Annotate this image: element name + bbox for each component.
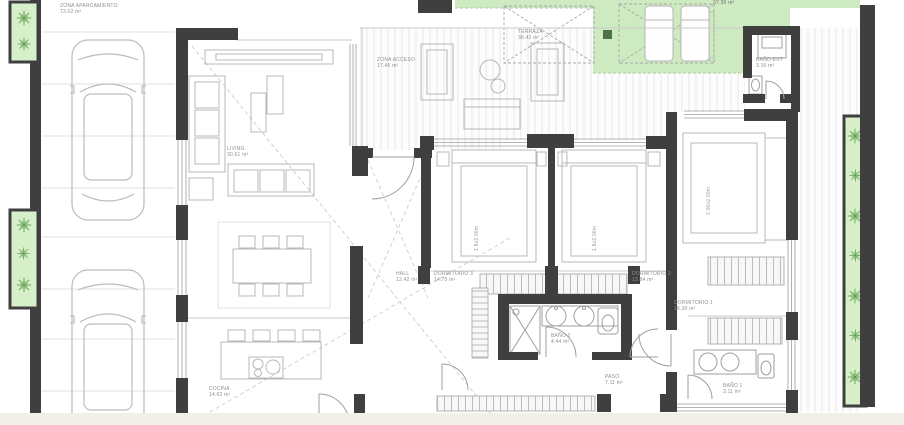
bottom-strip [0,413,904,425]
room-label-dormitorio3: DORMITORIO 3 14.75 m² [434,271,473,283]
floor-plan: ZONA APARCAMIENTO 73.02 m² LIVING 30.61 … [0,0,904,425]
stairs-return [472,288,488,358]
room-label-bano2: BAÑO 2 4.44 m² [551,333,571,345]
room-label-zona-aparcamiento: ZONA APARCAMIENTO 73.02 m² [60,3,118,15]
wardrobe-hall [437,396,595,411]
wardrobe-bano1 [708,318,782,344]
room-label-zona-acceso: ZONA ACCESO 17.45 m² [377,57,415,69]
room-label-hall: HALL 12.42 m² [396,271,417,283]
wardrobe-dormitorio1 [708,257,784,285]
room-label-paso: PASO 7.11 m² [605,374,623,386]
room-label-dormitorio1: DORMITORIO 1 16.30 m² [674,300,713,312]
room-label-dormitorio2: DORMITORIO 2 13.84 m² [632,271,671,283]
room-label-terraza: TERRAZA 38.42 m² [518,29,543,41]
room-label-living: LIVING 30.61 m² [227,146,248,158]
bed-dimension-dormitorio3: 1.8x2.00m [474,205,480,251]
bed-dimension-dormitorio1: 2.00x2.00m [706,165,712,215]
room-label-bano-ext: BAÑO EXT 3.16 m² [756,57,783,69]
room-label-bano1: BAÑO 1 3.11 m² [723,383,743,395]
room-label-jardin-area: 37.36 m² [713,0,734,6]
room-label-cocina: COCINA 14.63 m² [209,386,230,398]
bed-dimension-dormitorio2: 1.8x2.00m [592,205,598,251]
accent-square [603,30,612,39]
